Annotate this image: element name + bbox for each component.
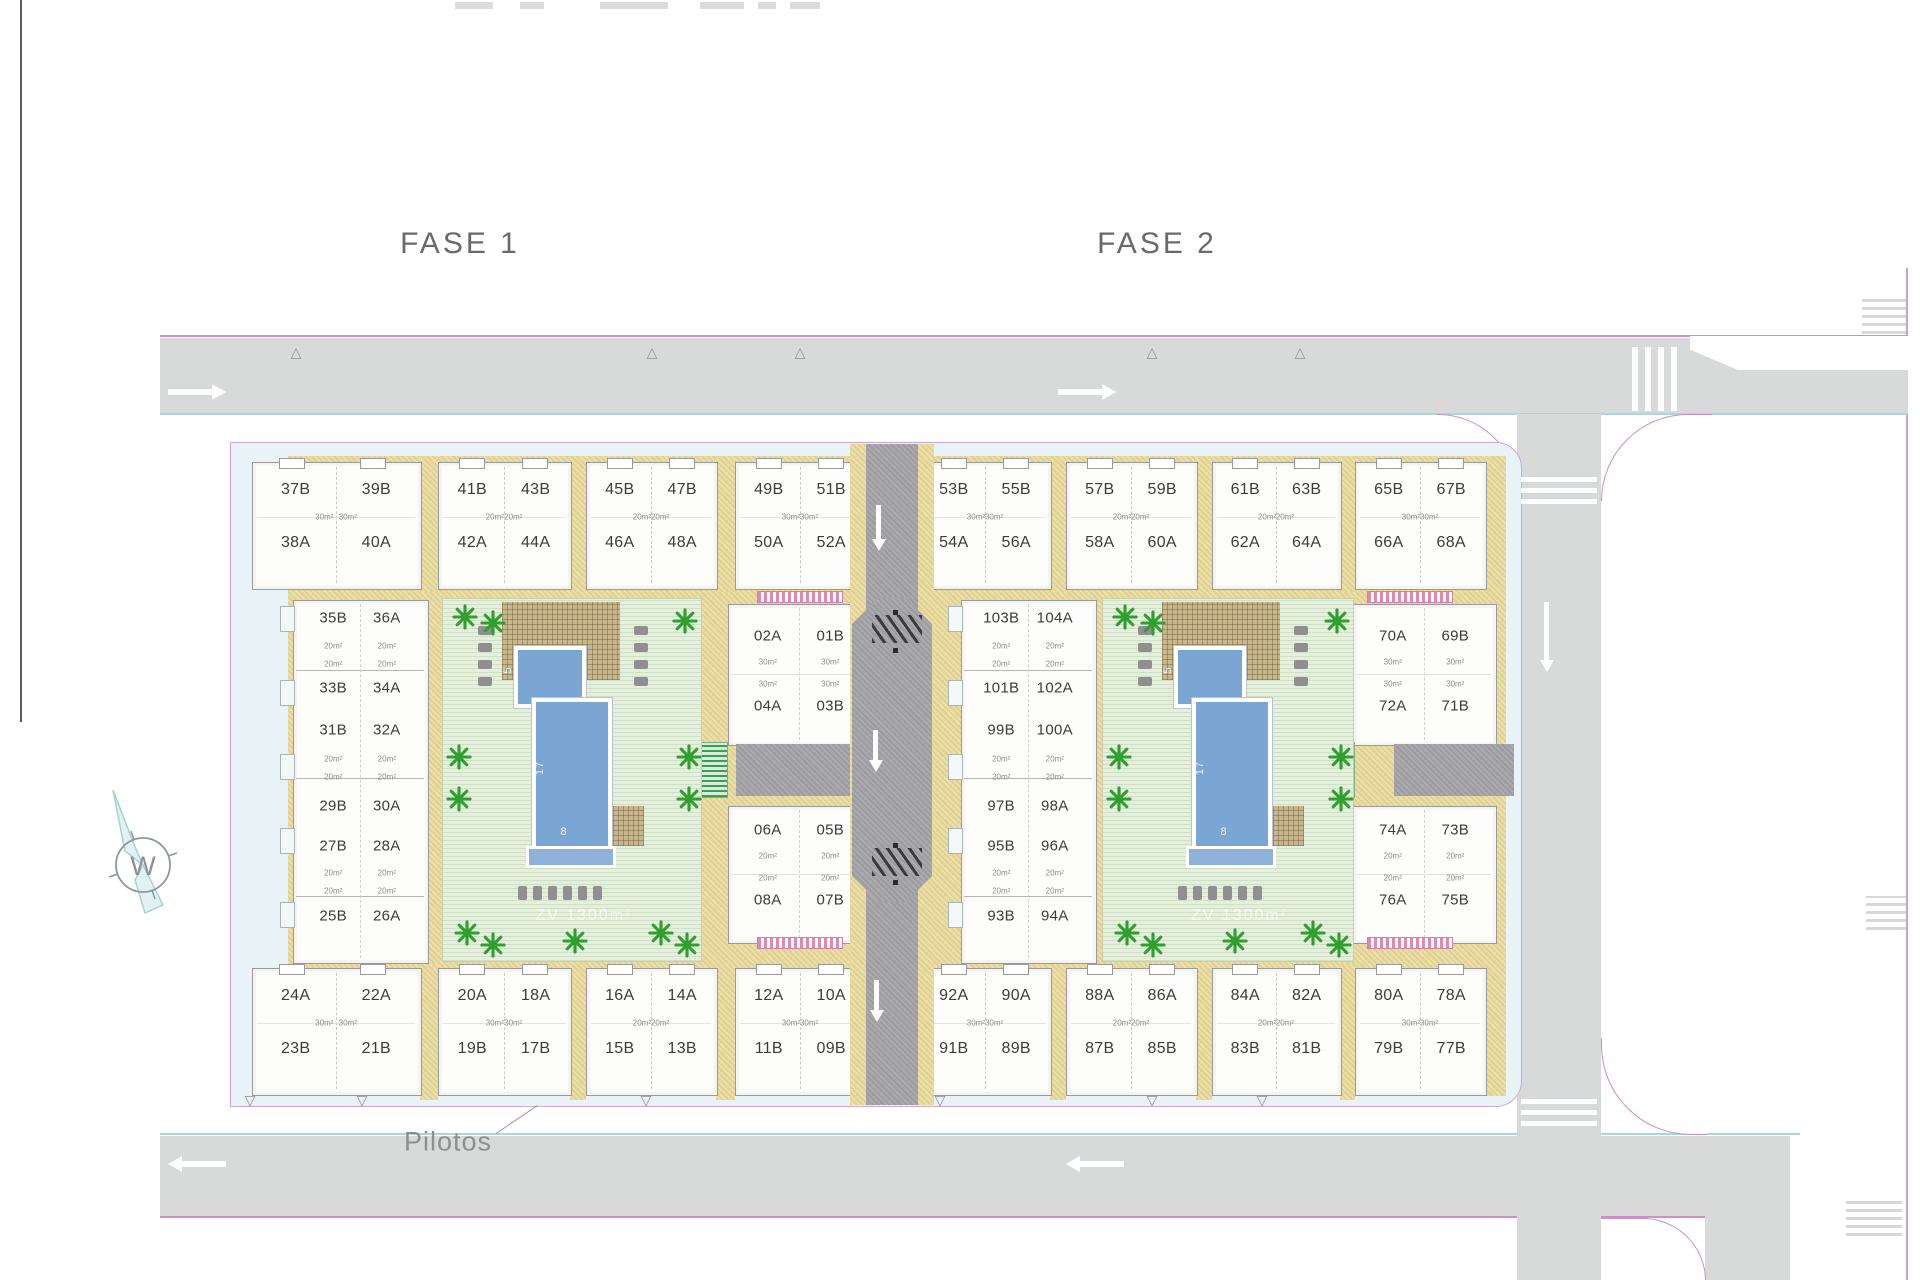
unit-label: 60A xyxy=(1148,534,1177,552)
area-label: 20m² xyxy=(324,887,342,896)
unit-label: 26A xyxy=(373,908,401,925)
arrow-shaft xyxy=(1080,1161,1124,1167)
sun-lounger xyxy=(1253,886,1262,900)
unit-label: 13B xyxy=(668,1040,697,1058)
area-label: 30m² xyxy=(1384,680,1402,689)
sun-lounger xyxy=(1223,886,1232,900)
sun-lounger xyxy=(518,886,527,900)
unit-label: 38A xyxy=(281,534,310,552)
area-label: 20m² xyxy=(1046,642,1064,651)
palm-icon xyxy=(1324,608,1350,634)
entrance-marker-icon: △ xyxy=(291,345,302,359)
corner-curve-right-bottom xyxy=(1601,1038,1707,1135)
unit-label: 61B xyxy=(1231,481,1260,499)
unit-label: 54A xyxy=(939,534,968,552)
area-label: 20m² xyxy=(1446,852,1464,861)
porch xyxy=(280,902,295,928)
quad-divider xyxy=(1276,467,1277,583)
row-divider xyxy=(1028,604,1029,958)
unit-label: 79B xyxy=(1374,1040,1403,1058)
unit-label: 02A xyxy=(754,628,782,645)
row-building xyxy=(1353,604,1497,746)
crosswalk xyxy=(1632,347,1678,411)
porch xyxy=(948,680,963,706)
pink-pergola-bar xyxy=(1367,937,1453,949)
arrow-head xyxy=(869,760,883,772)
area-label: 20m² xyxy=(759,852,777,861)
area-label: 20m² xyxy=(651,1019,669,1028)
palm-icon xyxy=(480,932,506,958)
quad-divider xyxy=(800,467,801,583)
area-label: 20m² xyxy=(992,642,1010,651)
pink-pergola-bar xyxy=(757,937,843,949)
entrance-marker-icon: △ xyxy=(1295,345,1306,359)
sun-lounger xyxy=(578,886,587,900)
sun-lounger xyxy=(634,626,648,635)
area-label: 30m² xyxy=(1402,1019,1420,1028)
unit-label: 32A xyxy=(373,722,401,739)
unit-label: 20A xyxy=(458,987,487,1005)
phase1-title: FASE 1 xyxy=(400,227,520,261)
row-midline xyxy=(732,874,866,875)
unit-label: 01B xyxy=(816,628,844,645)
sun-lounger xyxy=(563,886,572,900)
crosswalk xyxy=(1521,474,1597,504)
palm-icon xyxy=(446,744,472,770)
scan-mark xyxy=(455,2,493,9)
unit-label: 102A xyxy=(1037,680,1073,697)
area-label: 30m² xyxy=(1446,680,1464,689)
palm-icon xyxy=(1114,920,1140,946)
unit-label: 87B xyxy=(1085,1040,1114,1058)
area-label: 30m² xyxy=(1384,658,1402,667)
pool-dim-width: 8 xyxy=(560,826,567,838)
unit-label: 29B xyxy=(319,798,347,815)
unit-label: 69B xyxy=(1441,628,1469,645)
palm-icon xyxy=(454,920,480,946)
entrance-marker-icon: ▽ xyxy=(935,1093,946,1107)
area-label: 20m² xyxy=(651,513,669,522)
unit-label: 46A xyxy=(605,534,634,552)
palm-icon xyxy=(1300,920,1326,946)
unit-label: 06A xyxy=(754,822,782,839)
sun-lounger xyxy=(478,643,492,652)
unit-label: 99B xyxy=(987,722,1015,739)
quad-divider xyxy=(504,973,505,1089)
balcony xyxy=(607,964,633,975)
entrance-marker-icon: ▽ xyxy=(1257,1093,1268,1107)
compass: W xyxy=(85,785,205,920)
arrow-shaft xyxy=(168,389,212,395)
entrance-marker-icon: △ xyxy=(795,345,806,359)
area-label: 20m² xyxy=(378,755,396,764)
unit-label: 75B xyxy=(1441,892,1469,909)
area-label: 20m² xyxy=(324,755,342,764)
area-label: 30m² xyxy=(800,513,818,522)
quad-divider xyxy=(1131,467,1132,583)
unit-label: 66A xyxy=(1374,534,1403,552)
unit-label: 92A xyxy=(939,987,968,1005)
quad-divider xyxy=(504,467,505,583)
unit-label: 64A xyxy=(1292,534,1321,552)
sun-lounger xyxy=(478,677,492,686)
area-label: 30m² xyxy=(967,1019,985,1028)
quad-divider xyxy=(336,467,337,583)
sun-lounger xyxy=(1138,643,1152,652)
unit-label: 47B xyxy=(668,481,697,499)
unit-label: 21B xyxy=(362,1040,391,1058)
palm-icon xyxy=(1328,786,1354,812)
unit-label: 34A xyxy=(373,680,401,697)
quad-divider xyxy=(1420,467,1421,583)
pergola-trellis xyxy=(700,742,728,798)
pilotos-label: Pilotos xyxy=(404,1127,492,1158)
quad-divider xyxy=(1420,973,1421,1089)
entrance-marker-icon: △ xyxy=(1147,345,1158,359)
unit-label: 63B xyxy=(1292,481,1321,499)
area-label: 30m² xyxy=(315,1019,333,1028)
balcony xyxy=(941,458,967,469)
path-gap xyxy=(1340,964,1355,1100)
area-label: 30m² xyxy=(985,1019,1003,1028)
area-label: 20m² xyxy=(1046,660,1064,669)
balcony xyxy=(1294,458,1320,469)
palm-icon xyxy=(648,920,674,946)
corner-curve-loop xyxy=(1601,1218,1706,1280)
balcony xyxy=(1149,964,1175,975)
area-label: 20m² xyxy=(992,869,1010,878)
direction-arrow-icon xyxy=(869,730,883,772)
bollard xyxy=(893,610,898,615)
unit-label: 44A xyxy=(521,534,550,552)
sun-lounger xyxy=(1294,626,1308,635)
pool-step xyxy=(1186,846,1276,868)
unit-label: 101B xyxy=(983,680,1019,697)
compass-letter: W xyxy=(130,851,156,881)
unit-label: 104A xyxy=(1037,610,1073,627)
quad-midline xyxy=(257,517,415,518)
sun-lounger xyxy=(1294,660,1308,669)
quad-divider xyxy=(336,973,337,1089)
palm-icon xyxy=(1326,932,1352,958)
sidewalk-line-top xyxy=(160,413,1908,415)
area-label: 20m² xyxy=(324,869,342,878)
unit-label: 04A xyxy=(754,698,782,715)
site-plan: FASE 1 FASE 2 Pilotos W 37B39B30m²30m²38… xyxy=(0,0,1920,1280)
area-label: 30m² xyxy=(1420,513,1438,522)
area-label: 30m² xyxy=(985,513,1003,522)
speed-ramp xyxy=(872,615,922,643)
unit-label: 36A xyxy=(373,610,401,627)
path-gap xyxy=(570,964,586,1100)
quad-divider xyxy=(651,973,652,1089)
unit-label: 80A xyxy=(1374,987,1403,1005)
quad-divider xyxy=(985,973,986,1089)
unit-label: 84A xyxy=(1231,987,1260,1005)
balcony xyxy=(1232,458,1258,469)
pool-dim-head: 5 xyxy=(1162,666,1174,673)
area-label: 20m² xyxy=(1258,513,1276,522)
porch xyxy=(280,828,295,854)
balcony xyxy=(756,964,782,975)
area-label: 20m² xyxy=(378,642,396,651)
bollard xyxy=(893,843,898,848)
corner-curve-right-top xyxy=(1601,414,1712,501)
pool-main xyxy=(1192,698,1272,854)
unit-label: 10A xyxy=(817,987,846,1005)
unit-label: 42A xyxy=(458,534,487,552)
arrow-head xyxy=(212,384,226,400)
row-divider xyxy=(360,604,361,958)
sun-lounger xyxy=(533,886,542,900)
page-border-left xyxy=(20,0,22,722)
area-label: 20m² xyxy=(992,887,1010,896)
palm-icon xyxy=(1106,786,1132,812)
area-label: 20m² xyxy=(992,755,1010,764)
sun-lounger xyxy=(593,886,602,900)
palm-icon xyxy=(452,604,478,630)
unit-label: 43B xyxy=(521,481,550,499)
unit-label: 67B xyxy=(1437,481,1466,499)
sun-lounger xyxy=(1138,677,1152,686)
unit-label: 05B xyxy=(816,822,844,839)
unit-label: 72A xyxy=(1379,698,1407,715)
sun-lounger xyxy=(1238,886,1247,900)
palm-icon xyxy=(674,932,700,958)
sun-lounger xyxy=(1138,660,1152,669)
area-label: 20m² xyxy=(633,513,651,522)
area-label: 20m² xyxy=(324,660,342,669)
unit-label: 37B xyxy=(281,481,310,499)
area-label: 20m² xyxy=(1046,887,1064,896)
area-label: 20m² xyxy=(1046,869,1064,878)
unit-label: 95B xyxy=(987,838,1015,855)
quad-building xyxy=(252,462,422,590)
direction-arrow-icon xyxy=(168,384,226,400)
sun-lounger xyxy=(1178,886,1187,900)
unit-label: 35B xyxy=(319,610,347,627)
unit-label: 50A xyxy=(754,534,783,552)
balcony xyxy=(818,964,844,975)
porch xyxy=(280,754,295,780)
area-label: 20m² xyxy=(1113,1019,1131,1028)
balcony xyxy=(818,458,844,469)
area-label: 30m² xyxy=(339,513,357,522)
phase2-title: FASE 2 xyxy=(1097,227,1217,261)
balcony xyxy=(756,458,782,469)
palm-icon xyxy=(1328,744,1354,770)
unit-label: 28A xyxy=(373,838,401,855)
row-building xyxy=(1353,806,1497,944)
palm-icon xyxy=(1222,928,1248,954)
palm-icon xyxy=(672,608,698,634)
unit-label: 55B xyxy=(1002,481,1031,499)
crosswalk xyxy=(1846,1196,1902,1236)
area-label: 30m² xyxy=(504,1019,522,1028)
entry-plaza xyxy=(1394,744,1514,796)
area-label: 30m² xyxy=(782,513,800,522)
pink-pergola-bar xyxy=(757,591,843,603)
unit-label: 07B xyxy=(816,892,844,909)
palm-icon xyxy=(1140,932,1166,958)
unit-label: 77B xyxy=(1437,1040,1466,1058)
row-midline xyxy=(732,674,866,675)
area-label: 20m² xyxy=(1384,874,1402,883)
unit-label: 03B xyxy=(816,698,844,715)
path-gap xyxy=(716,456,735,592)
unit-label: 12A xyxy=(754,987,783,1005)
unit-label: 90A xyxy=(1002,987,1031,1005)
area-label: 20m² xyxy=(821,874,839,883)
unit-label: 96A xyxy=(1041,838,1069,855)
unit-label: 33B xyxy=(319,680,347,697)
area-label: 30m² xyxy=(800,1019,818,1028)
road-right xyxy=(1517,414,1601,1280)
balcony xyxy=(1087,964,1113,975)
path-gap xyxy=(1050,456,1066,592)
unit-label: 53B xyxy=(939,481,968,499)
arrow-head xyxy=(168,1156,182,1172)
scan-mark xyxy=(700,2,744,9)
entrance-marker-icon: ▽ xyxy=(641,1093,652,1107)
entrance-marker-icon: ▽ xyxy=(357,1093,368,1107)
quad-midline xyxy=(257,1023,415,1024)
direction-arrow-icon xyxy=(870,980,884,1022)
area-label: 20m² xyxy=(633,1019,651,1028)
quad-divider xyxy=(985,467,986,583)
balcony xyxy=(279,964,305,975)
arrow-shaft xyxy=(876,505,881,539)
unit-label: 71B xyxy=(1441,698,1469,715)
sun-lounger xyxy=(634,677,648,686)
pergola xyxy=(1268,806,1304,846)
area-label: 20m² xyxy=(1276,1019,1294,1028)
area-label: 20m² xyxy=(1046,755,1064,764)
porch xyxy=(948,754,963,780)
unit-label: 76A xyxy=(1379,892,1407,909)
area-label: 20m² xyxy=(759,874,777,883)
area-label: 20m² xyxy=(992,660,1010,669)
balcony xyxy=(279,458,305,469)
unit-label: 24A xyxy=(281,987,310,1005)
area-label: 20m² xyxy=(992,773,1010,782)
area-label: 30m² xyxy=(759,680,777,689)
porch xyxy=(948,902,963,928)
unit-label: 103B xyxy=(983,610,1019,627)
unit-label: 74A xyxy=(1379,822,1407,839)
sun-lounger xyxy=(1294,677,1308,686)
area-label: 30m² xyxy=(821,658,839,667)
balcony xyxy=(459,964,485,975)
arrow-shaft xyxy=(182,1161,226,1167)
area-label: 20m² xyxy=(486,513,504,522)
unit-label: 88A xyxy=(1085,987,1114,1005)
balcony xyxy=(522,458,548,469)
palm-icon xyxy=(676,744,702,770)
unit-label: 08A xyxy=(754,892,782,909)
porch xyxy=(280,680,295,706)
sun-lounger xyxy=(634,643,648,652)
area-label: 20m² xyxy=(378,660,396,669)
porch xyxy=(948,606,963,632)
unit-label: 82A xyxy=(1292,987,1321,1005)
pool-main xyxy=(532,698,612,854)
entrance-marker-icon: △ xyxy=(647,345,658,359)
balcony xyxy=(522,964,548,975)
arrow-shaft xyxy=(1544,602,1549,660)
unit-label: 62A xyxy=(1231,534,1260,552)
area-label: 20m² xyxy=(1046,773,1064,782)
courtyard-watermark: ZV 1300m² xyxy=(1191,907,1288,925)
scan-mark xyxy=(758,2,776,9)
balcony xyxy=(1232,964,1258,975)
path-gap xyxy=(420,456,438,592)
unit-label: 65B xyxy=(1374,481,1403,499)
arrow-head xyxy=(1540,660,1554,672)
unit-label: 16A xyxy=(605,987,634,1005)
balcony xyxy=(1294,964,1320,975)
bollard xyxy=(893,880,898,885)
pool-dim-head: 5 xyxy=(502,666,514,673)
palm-icon xyxy=(480,610,506,636)
balcony xyxy=(941,964,967,975)
direction-arrow-icon xyxy=(168,1156,226,1172)
unit-label: 83B xyxy=(1231,1040,1260,1058)
area-label: 30m² xyxy=(1420,1019,1438,1028)
palm-icon xyxy=(562,928,588,954)
unit-label: 85B xyxy=(1148,1040,1177,1058)
balcony xyxy=(1149,458,1175,469)
area-label: 20m² xyxy=(1384,852,1402,861)
balcony xyxy=(1376,964,1402,975)
unit-label: 59B xyxy=(1148,481,1177,499)
unit-label: 58A xyxy=(1085,534,1114,552)
balcony xyxy=(459,458,485,469)
area-label: 20m² xyxy=(1446,874,1464,883)
balcony xyxy=(669,458,695,469)
porch xyxy=(948,828,963,854)
page-border-right xyxy=(1906,268,1908,1280)
scan-mark xyxy=(790,2,820,9)
unit-label: 25B xyxy=(319,908,347,925)
row-midline xyxy=(1357,874,1491,875)
unit-label: 52A xyxy=(817,534,846,552)
unit-label: 89B xyxy=(1002,1040,1031,1058)
palm-icon xyxy=(1140,610,1166,636)
row-building xyxy=(961,600,1097,964)
unit-label: 97B xyxy=(987,798,1015,815)
path-gap xyxy=(420,964,438,1100)
unit-label: 17B xyxy=(521,1040,550,1058)
unit-label: 41B xyxy=(458,481,487,499)
area-label: 30m² xyxy=(782,1019,800,1028)
unit-label: 09B xyxy=(817,1040,846,1058)
road-outer-corner xyxy=(1705,1215,1790,1280)
unit-label: 40A xyxy=(362,534,391,552)
unit-label: 100A xyxy=(1037,722,1073,739)
unit-label: 30A xyxy=(373,798,401,815)
sun-lounger xyxy=(548,886,557,900)
path-gap xyxy=(570,456,586,592)
sun-lounger xyxy=(478,660,492,669)
road-top-pink-line xyxy=(160,335,1908,337)
area-label: 30m² xyxy=(315,513,333,522)
area-label: 30m² xyxy=(821,680,839,689)
arrow-shaft xyxy=(873,730,878,760)
pergola xyxy=(608,806,644,846)
area-label: 30m² xyxy=(759,658,777,667)
area-label: 30m² xyxy=(339,1019,357,1028)
